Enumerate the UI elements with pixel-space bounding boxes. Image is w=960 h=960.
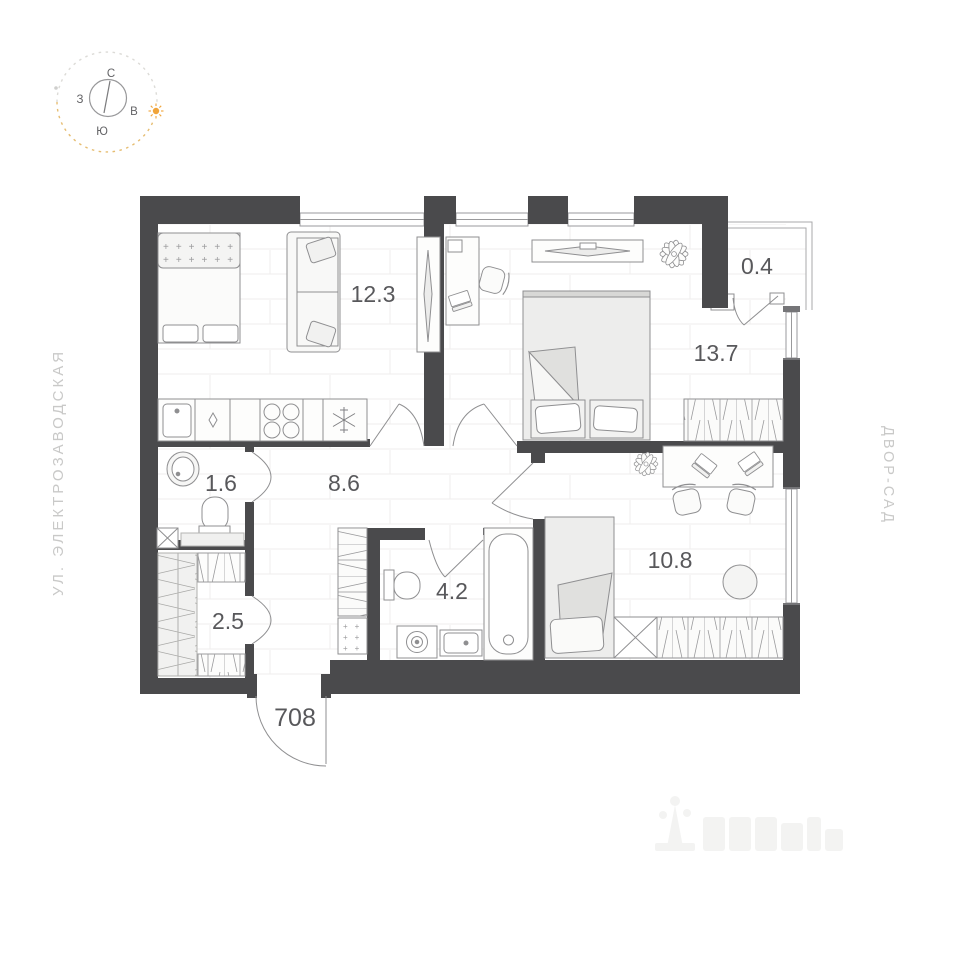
compass-south-label: Ю <box>96 126 108 138</box>
bathtub <box>484 528 533 660</box>
label-bedroom: 13.7 <box>694 340 739 366</box>
street-label: УЛ. ЭЛЕКТРОЗАВОДСКАЯ <box>50 356 67 596</box>
compass: С З В Ю <box>28 28 198 188</box>
watermark <box>645 785 865 860</box>
entrance-frame-left <box>247 674 257 698</box>
bath-toilet <box>384 570 420 600</box>
pillow <box>593 406 638 433</box>
pillow <box>535 403 581 434</box>
window <box>783 306 800 364</box>
label-hallway: 8.6 <box>328 470 360 496</box>
compass-east-label: В <box>130 106 138 118</box>
svg-text:++++++: ++++++ <box>163 242 240 253</box>
tv-console-bedroom <box>532 240 643 262</box>
wall-left <box>140 196 158 694</box>
shoe-cabinet: ++ ++ ++ <box>338 618 367 654</box>
shaft-box <box>614 617 657 658</box>
sofa <box>287 232 340 352</box>
wall-top <box>140 196 300 224</box>
wall-bottom-left <box>140 678 256 694</box>
compass-orbit-dot <box>54 86 58 90</box>
window <box>568 213 634 226</box>
wc-toilet <box>199 497 230 536</box>
windows-top <box>300 213 634 226</box>
tv-unit-living <box>417 237 440 352</box>
sun-icon <box>147 102 165 120</box>
compass-west-label: З <box>77 94 84 106</box>
wall-bottom-right <box>330 660 800 694</box>
label-bedroom2: 10.8 <box>648 547 693 573</box>
room-hallway: ++ ++ ++ <box>338 528 367 654</box>
pillow <box>203 325 238 342</box>
courtyard-label: ДВОР-САД <box>880 426 896 586</box>
label-bathroom: 4.2 <box>436 578 468 604</box>
label-wc: 1.6 <box>205 470 237 496</box>
wall-bathroom-left <box>367 528 380 660</box>
faucet-dot <box>175 409 179 413</box>
label-balcony: 0.4 <box>741 253 773 279</box>
window <box>456 213 528 226</box>
bed-double <box>523 291 650 440</box>
svg-text:++: ++ <box>343 644 366 653</box>
window <box>783 483 800 609</box>
washing-machine <box>397 626 437 658</box>
bed-single <box>545 517 614 658</box>
svg-text:++: ++ <box>343 633 366 642</box>
pillow <box>163 325 198 342</box>
label-wardrobe: 2.5 <box>212 608 244 634</box>
kitchen-counter <box>158 399 367 441</box>
bed-small: ++++++ ++++++ <box>158 233 240 343</box>
svg-text:++++++: ++++++ <box>163 255 240 266</box>
wall-balcony-left <box>702 196 728 308</box>
wc-shelf <box>181 533 244 546</box>
window <box>300 213 424 226</box>
apartment-number: 708 <box>274 704 316 732</box>
label-kitchen-living: 12.3 <box>351 281 396 307</box>
compass-dial <box>90 80 127 117</box>
bath-sink <box>440 630 482 656</box>
shaft-box <box>157 528 178 548</box>
wall-bathroom-right <box>533 519 545 660</box>
compass-north-label: С <box>107 68 115 80</box>
pouf <box>723 565 757 599</box>
entrance-frame-right <box>321 674 331 698</box>
floorplan: ++++++ ++++++ <box>125 170 835 790</box>
svg-text:++: ++ <box>343 622 366 631</box>
wall-right-upper <box>783 360 800 487</box>
pillow <box>550 616 604 654</box>
floorplan-page: С З В Ю УЛ. ЭЛЕКТРОЗАВОДСКАЯ ДВОР-САД <box>0 0 960 960</box>
